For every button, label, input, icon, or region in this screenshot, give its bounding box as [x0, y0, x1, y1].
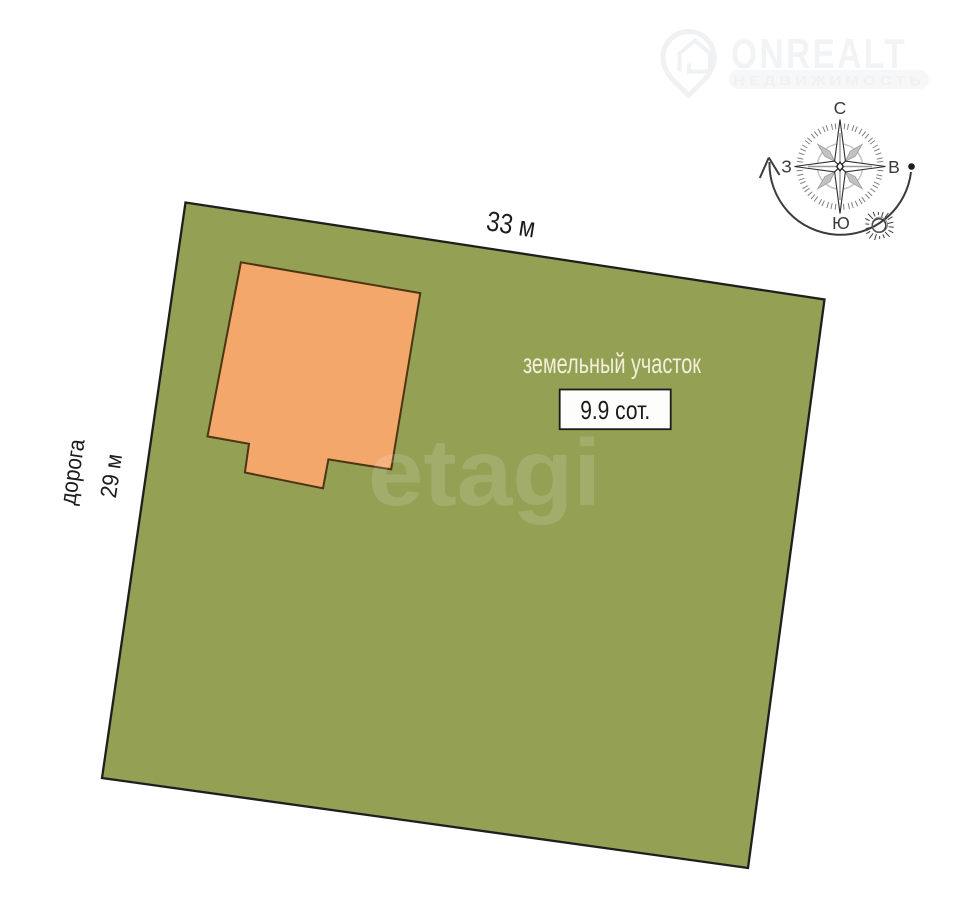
svg-text:etagi: etagi	[368, 420, 601, 526]
svg-text:дорога: дорога	[54, 437, 89, 506]
svg-text:29 м: 29 м	[95, 452, 127, 499]
svg-text:З: З	[781, 157, 792, 177]
svg-text:НЕДВИЖИМОСТЬ: НЕДВИЖИМОСТЬ	[733, 73, 925, 88]
svg-text:С: С	[834, 98, 847, 118]
svg-text:ONREALT: ONREALT	[731, 30, 907, 77]
svg-text:Ю: Ю	[832, 213, 850, 233]
svg-text:33 м: 33 м	[484, 205, 537, 243]
svg-text:9.9 сот.: 9.9 сот.	[580, 395, 650, 425]
svg-text:земельный участок: земельный участок	[523, 348, 702, 379]
svg-text:В: В	[888, 157, 900, 177]
